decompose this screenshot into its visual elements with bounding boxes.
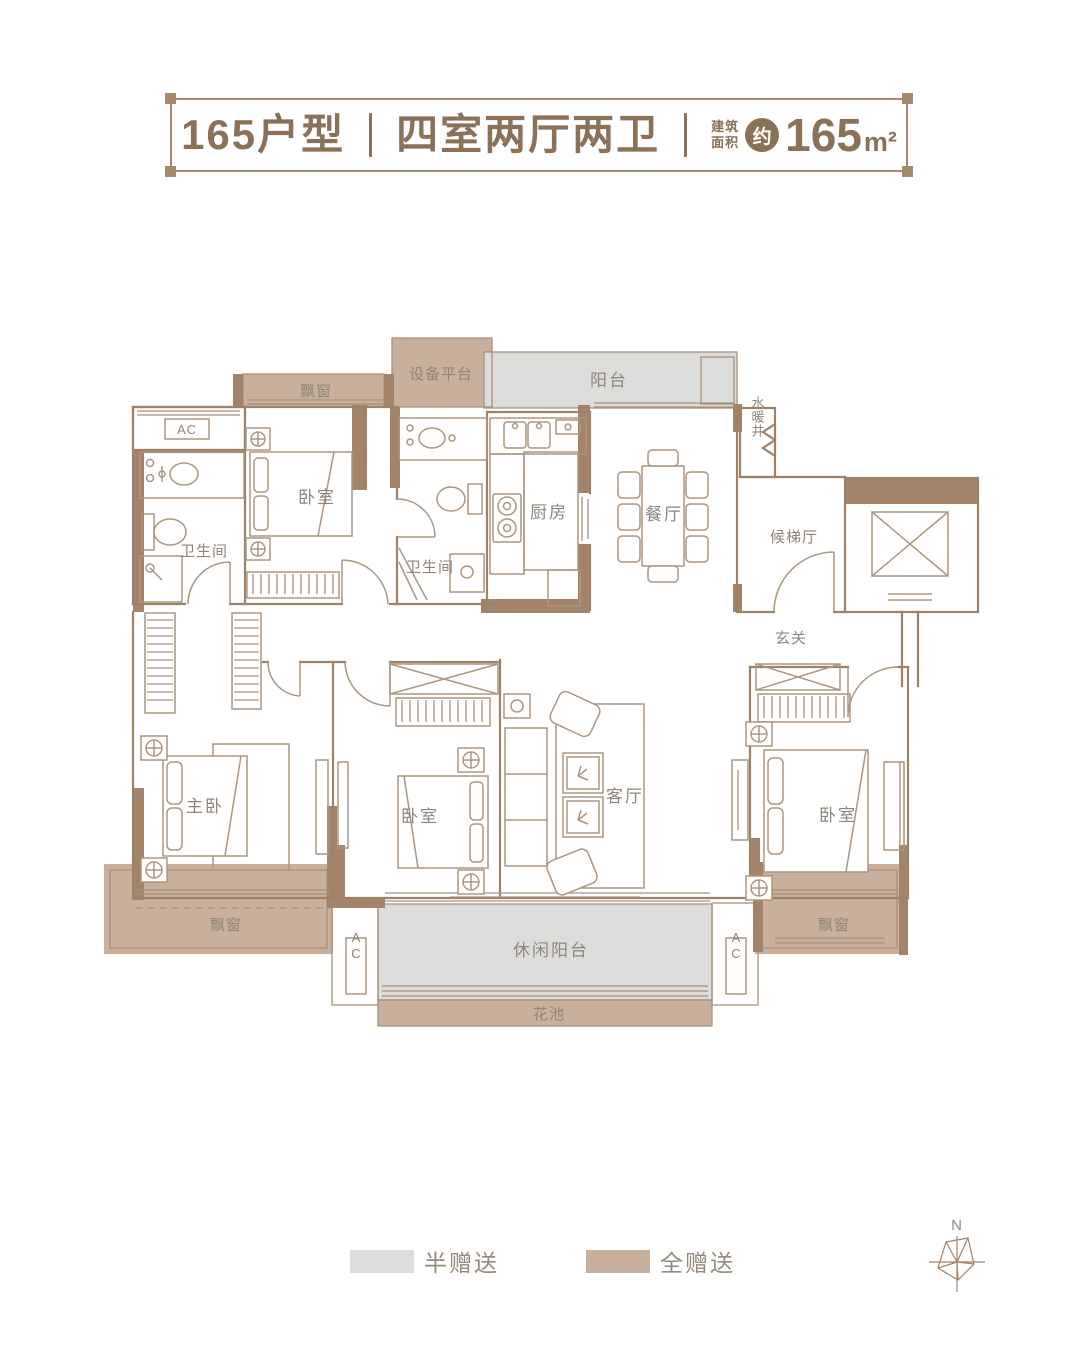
room-label-equipment-platform: 设备平台	[409, 366, 473, 383]
room-label-leisure-balcony: 休闲阳台	[513, 941, 589, 960]
floor-plan: 飘窗 设备平台 阳台 水暖井 AC 卧室 卫生间 卫生间 厨房 餐厅 候梯厅 玄…	[0, 0, 1080, 1372]
room-label-entrance-hall: 玄关	[775, 630, 807, 647]
room-label-dining-room: 餐厅	[645, 505, 683, 524]
legend-full-gift: 全赠送	[586, 1244, 735, 1278]
room-label-elevator-lobby: 候梯厅	[770, 529, 818, 546]
room-label-balcony-top: 阳台	[590, 371, 628, 390]
door-bedroom-top-left	[342, 560, 388, 604]
room-label-bay-window-bottom-left: 飘窗	[210, 916, 242, 934]
elevator-door	[888, 594, 932, 600]
legend-swatch-half-gift	[350, 1250, 414, 1273]
door-master-bedroom	[268, 662, 300, 696]
door-bedroom-middle	[345, 662, 390, 706]
legend-label-half-gift: 半赠送	[424, 1244, 499, 1278]
room-label-ac-top-left: AC	[177, 422, 197, 437]
legend-half-gift: 半赠送	[350, 1244, 499, 1278]
room-label-flower-bed: 花池	[533, 1006, 565, 1023]
door-bedroom-right	[848, 667, 898, 717]
room-label-ac-bottom-right: AC	[729, 930, 744, 962]
room-label-bedroom-top-left: 卧室	[298, 488, 336, 507]
bedroom-middle-furniture	[338, 664, 498, 894]
zone-bay-bottom-right	[755, 864, 903, 954]
master-bedroom-furniture	[141, 613, 328, 882]
room-label-bathroom-left: 卫生间	[180, 543, 228, 560]
door-bathroom-middle	[397, 499, 435, 537]
room-label-bay-window-bottom-right: 飘窗	[818, 916, 850, 934]
room-label-ac-bottom-left: AC	[349, 930, 364, 962]
room-label-bedroom-middle: 卧室	[401, 807, 439, 826]
door-entry	[774, 552, 834, 612]
room-label-kitchen: 厨房	[530, 503, 568, 522]
floorplan-page: 165户型 四室两厅两卫 建筑 面积 约 165 m²	[0, 0, 1080, 1372]
room-label-bedroom-right: 卧室	[819, 806, 857, 825]
room-label-bay-window-top-left: 飘窗	[300, 382, 332, 400]
elevator	[872, 512, 948, 576]
compass-rose-spokes	[938, 1238, 974, 1280]
room-label-master-bedroom: 主卧	[186, 797, 224, 816]
room-label-water-heating-shaft: 水暖井	[750, 396, 765, 438]
room-label-bathroom-middle: 卫生间	[406, 559, 454, 576]
bedroom-top-left-furniture	[246, 428, 352, 598]
compass-north-label: N	[951, 1217, 963, 1234]
door-bathroom-left	[188, 562, 230, 604]
bathroom-left-furniture	[140, 452, 244, 602]
room-label-living-room: 客厅	[606, 787, 644, 806]
legend-swatch-full-gift	[586, 1250, 650, 1273]
legend-label-full-gift: 全赠送	[660, 1244, 735, 1278]
compass: N	[929, 1217, 985, 1292]
